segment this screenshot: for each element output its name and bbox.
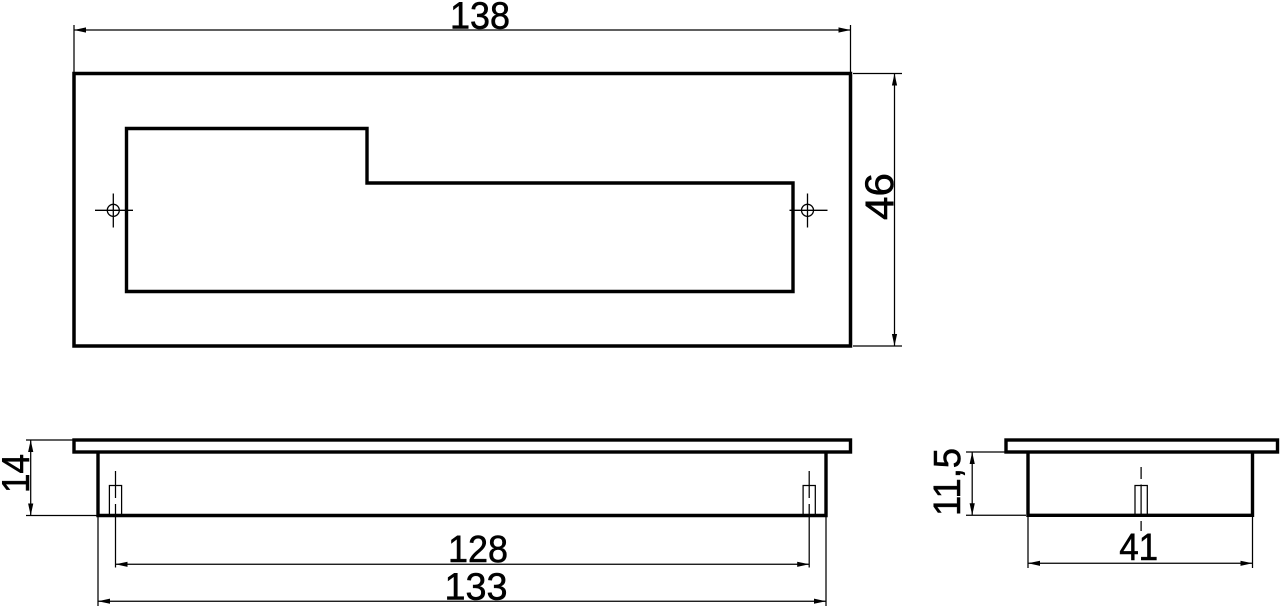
- svg-text:41: 41: [1119, 527, 1158, 569]
- svg-text:11,5: 11,5: [927, 448, 969, 516]
- svg-text:138: 138: [450, 0, 510, 38]
- svg-text:128: 128: [448, 529, 508, 571]
- svg-text:46: 46: [858, 173, 902, 220]
- svg-text:133: 133: [445, 567, 508, 606]
- svg-text:14: 14: [0, 454, 38, 493]
